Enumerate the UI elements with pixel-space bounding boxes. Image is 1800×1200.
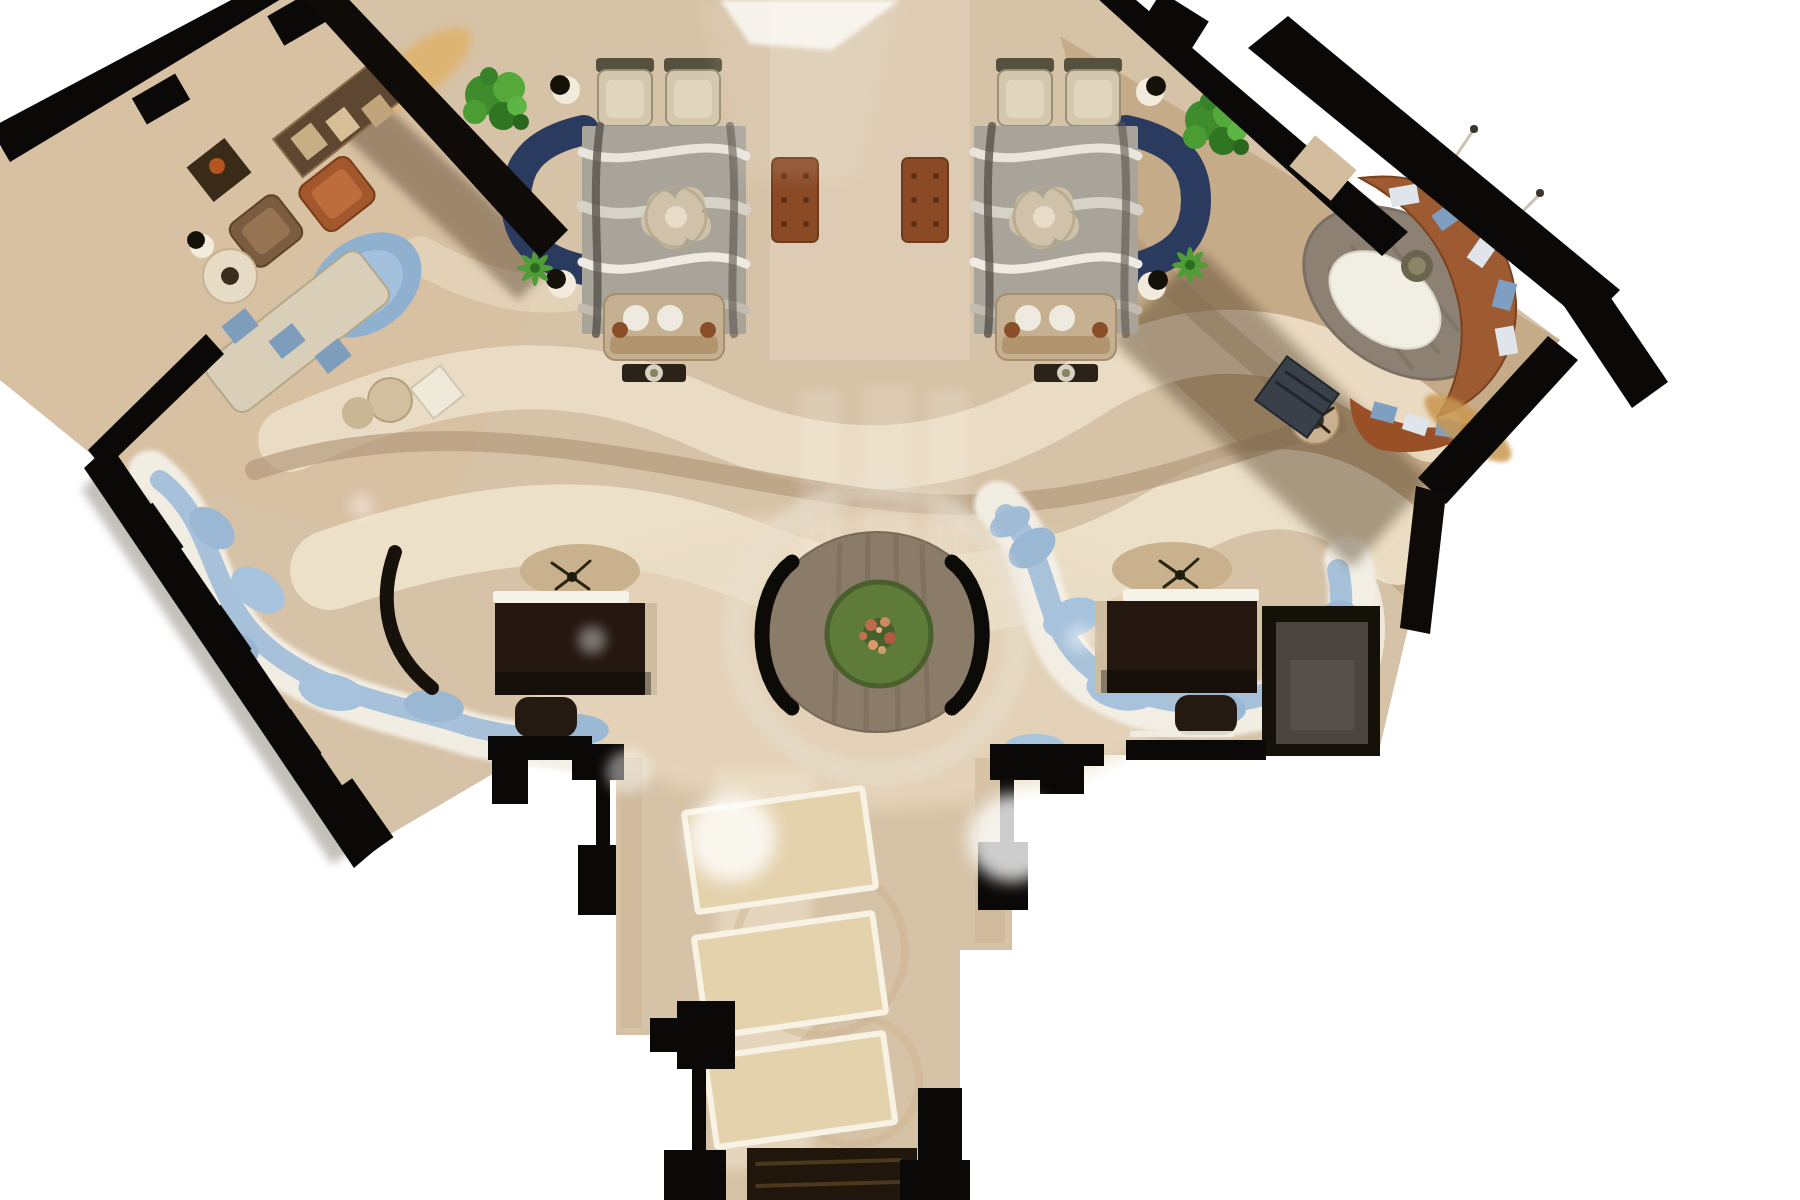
floor-lamp — [1146, 76, 1166, 96]
rug-streak — [1122, 126, 1126, 334]
bench-tuft — [781, 221, 787, 227]
plant — [463, 100, 487, 124]
armchair-cushion — [1006, 80, 1044, 118]
lamp-knob — [1536, 189, 1544, 197]
wall-block — [900, 1160, 970, 1200]
desk-chair — [1175, 695, 1237, 735]
corridor-shade — [620, 758, 642, 1028]
bench-tuft — [933, 197, 939, 203]
table-dish — [650, 369, 658, 377]
lamp-knob — [1470, 125, 1478, 133]
sofa-pillow — [1049, 305, 1075, 331]
wall — [1126, 740, 1266, 760]
bench-tuft — [781, 197, 787, 203]
centerpiece-flower — [880, 617, 890, 627]
spiky-plant — [1185, 260, 1195, 270]
sofa-accent — [1004, 322, 1020, 338]
desk-shade — [495, 672, 651, 695]
centerpiece-flower — [876, 627, 882, 633]
armchair-cushion — [674, 80, 712, 118]
floor-lamp — [187, 231, 205, 249]
entry-column — [677, 1001, 735, 1069]
bench-tuft — [933, 173, 939, 179]
ottoman-center — [665, 206, 687, 228]
counter-ledge — [1123, 589, 1259, 601]
floor-glint — [1066, 624, 1094, 652]
spotlight-glow — [688, 794, 776, 882]
bench-tuft — [911, 221, 917, 227]
plant — [1233, 139, 1249, 155]
table-tray — [221, 267, 239, 285]
cabinet-accent — [209, 158, 225, 174]
bench-tuft — [911, 197, 917, 203]
wall-stub — [650, 1018, 680, 1052]
tufted-bench — [902, 158, 948, 242]
floor-glint — [350, 494, 374, 518]
sofa-accent — [612, 322, 628, 338]
armchair-cushion — [606, 80, 644, 118]
bench-tuft — [803, 221, 809, 227]
bench-tuft — [803, 197, 809, 203]
rug-streak — [988, 126, 992, 334]
plant — [513, 114, 529, 130]
centerpiece-flower — [878, 646, 886, 654]
spotlight-glow — [968, 794, 1056, 882]
round-side-table — [368, 378, 412, 422]
centerpiece-flower — [868, 640, 878, 650]
sofa-pillow — [657, 305, 683, 331]
armchair-cushion — [1074, 80, 1112, 118]
spotlight-glow — [606, 750, 650, 794]
wall-block — [990, 744, 1046, 780]
floorplan-stage — [0, 0, 1800, 1200]
floor-lamp — [1148, 270, 1168, 290]
centerpiece-flower — [865, 619, 877, 631]
sofa-seat — [610, 336, 718, 354]
bench-tuft — [933, 221, 939, 227]
centerpiece-flower — [884, 632, 896, 644]
wall-stub — [1040, 764, 1084, 794]
plant — [1183, 125, 1207, 149]
bench-tuft — [911, 173, 917, 179]
entry-threshold — [747, 1148, 917, 1200]
table-plate — [1408, 257, 1426, 275]
desk-chair — [515, 697, 577, 737]
dark-room-inner — [1290, 660, 1354, 730]
counter-ledge — [493, 591, 629, 603]
wall-stub — [492, 758, 528, 804]
sofa-seat — [1002, 336, 1110, 354]
stool — [342, 397, 374, 429]
floor-lamp — [546, 269, 566, 289]
floor-glint — [578, 626, 606, 654]
plant — [480, 67, 498, 85]
sofa-accent — [700, 322, 716, 338]
plant — [507, 96, 527, 116]
centerpiece-flower — [859, 632, 867, 640]
rug-streak — [730, 126, 734, 334]
counter-plant — [567, 572, 577, 582]
wall-block — [664, 1150, 726, 1200]
wall-ledge — [1130, 731, 1234, 737]
spiky-plant — [530, 263, 540, 273]
hotel-lobby-floorplan-render — [0, 0, 1800, 1200]
entry-column — [578, 845, 616, 915]
table-dish — [1062, 369, 1070, 377]
ottoman-center — [1033, 206, 1055, 228]
rug-streak — [596, 126, 600, 334]
desk-shade — [1101, 670, 1257, 693]
floor-lamp — [550, 75, 570, 95]
sofa-accent — [1092, 322, 1108, 338]
counter-plant — [1175, 570, 1185, 580]
